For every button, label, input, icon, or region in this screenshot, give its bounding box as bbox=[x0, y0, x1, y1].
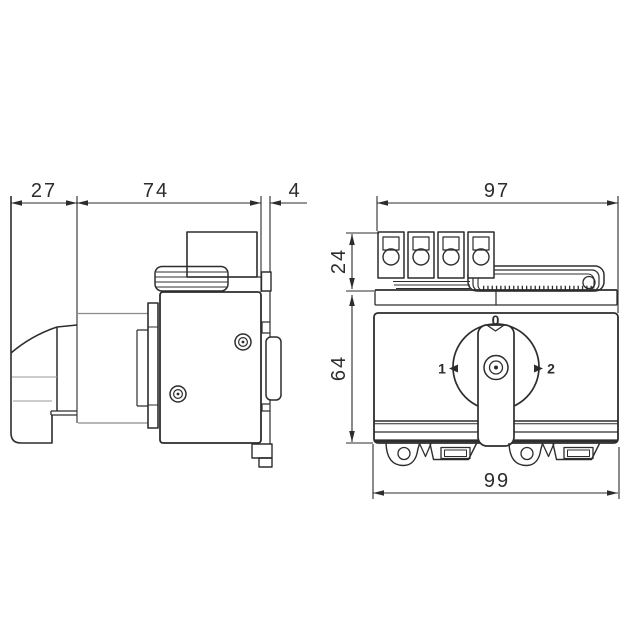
clamp-outline-inner bbox=[478, 274, 594, 291]
foot-round-2 bbox=[509, 443, 543, 466]
terminal-block-3 bbox=[438, 232, 464, 278]
dim-arrow-up bbox=[349, 295, 355, 306]
terminal-block-1 bbox=[378, 232, 404, 278]
dimension-24: 24 bbox=[328, 233, 379, 291]
dim-arrow-right bbox=[66, 200, 77, 205]
foot-tab-2-slot-inner bbox=[568, 450, 590, 457]
din-latch-lower bbox=[259, 458, 272, 467]
side-view bbox=[11, 196, 281, 467]
terminal-body bbox=[468, 232, 494, 278]
position-label-0: 0 bbox=[492, 312, 500, 328]
clamp-hole bbox=[583, 277, 595, 289]
handle-front-outline bbox=[11, 196, 52, 443]
switch-body-side bbox=[160, 292, 261, 443]
terminal-bus-lines bbox=[393, 282, 470, 289]
dimension-74: 74 bbox=[77, 180, 261, 206]
knob-handle-bar bbox=[478, 325, 514, 446]
dimension-27: 27 bbox=[11, 180, 77, 206]
screw-center-dot bbox=[177, 393, 180, 396]
dim-arrow bbox=[270, 200, 281, 205]
terminal-body bbox=[438, 232, 464, 278]
dimension-4: 4 bbox=[270, 180, 307, 206]
dim-74-label: 74 bbox=[143, 180, 169, 202]
din-hook-top bbox=[262, 272, 272, 291]
drawing-svg: 0 1 2 27 bbox=[0, 0, 630, 630]
position-label-2: 2 bbox=[547, 361, 555, 377]
technical-drawing-canvas: 0 1 2 27 bbox=[0, 0, 630, 630]
dim-27-label: 27 bbox=[31, 180, 57, 202]
dimension-64: 64 bbox=[328, 295, 373, 443]
dim-arrow-left bbox=[11, 200, 22, 205]
dim-arrow-down bbox=[349, 431, 355, 442]
dim-arrow-right bbox=[607, 490, 618, 495]
front-view: 0 1 2 bbox=[374, 196, 618, 466]
top-strip bbox=[375, 290, 617, 305]
dim-64-label: 64 bbox=[328, 355, 350, 381]
foot-notch-2 bbox=[543, 444, 555, 457]
dimension-97: 97 bbox=[377, 180, 618, 206]
handle-top-slope bbox=[11, 327, 57, 353]
foot-notch-1 bbox=[420, 444, 432, 457]
mounting-flange bbox=[148, 303, 158, 428]
dim-arrow-up bbox=[349, 234, 355, 245]
knob-base-lip bbox=[51, 411, 77, 415]
dim-97-label: 97 bbox=[484, 180, 510, 202]
din-rail-profile bbox=[266, 337, 281, 400]
dim-4-label: 4 bbox=[288, 180, 301, 202]
dim-arrow-left bbox=[373, 490, 384, 495]
terminal-box-side bbox=[187, 232, 257, 277]
foot-hole-2 bbox=[521, 448, 533, 460]
foot-hole-1 bbox=[398, 448, 410, 460]
screw-center-dot bbox=[242, 341, 245, 344]
terminal-body bbox=[408, 232, 434, 278]
foot-round-1 bbox=[386, 443, 420, 466]
dim-99-label: 99 bbox=[484, 470, 510, 492]
terminal-body bbox=[378, 232, 404, 278]
position-label-1: 1 bbox=[438, 361, 446, 377]
dim-arrow-left bbox=[377, 200, 388, 205]
dim-arrow-down bbox=[349, 278, 355, 289]
terminal-block-2 bbox=[408, 232, 434, 278]
terminal-blocks bbox=[378, 232, 494, 278]
dim-arrow-right bbox=[607, 200, 618, 205]
din-hook-lower-notch bbox=[262, 404, 270, 411]
din-hook-upper-notch bbox=[262, 322, 270, 333]
shaft-recess bbox=[137, 330, 148, 406]
dim-arrow-right bbox=[250, 200, 261, 205]
handle-screw-dot bbox=[494, 366, 498, 370]
terminal-block-4 bbox=[468, 232, 494, 278]
foot-tab-1-slot-inner bbox=[445, 450, 467, 457]
dim-arrow-left bbox=[77, 200, 88, 205]
din-latch-upper bbox=[252, 444, 272, 458]
dim-24-label: 24 bbox=[328, 248, 350, 274]
knob-base-side bbox=[57, 325, 77, 411]
